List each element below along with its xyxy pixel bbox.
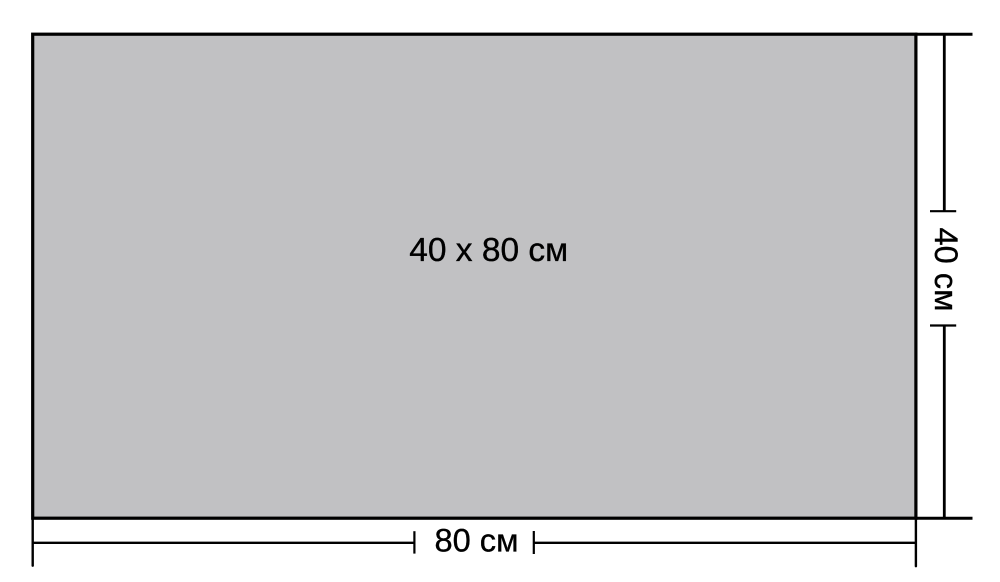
- svg-text:40 x 80 см: 40 x 80 см: [409, 232, 568, 269]
- svg-text:40 см: 40 см: [928, 228, 965, 312]
- svg-text:80 см: 80 см: [435, 521, 519, 558]
